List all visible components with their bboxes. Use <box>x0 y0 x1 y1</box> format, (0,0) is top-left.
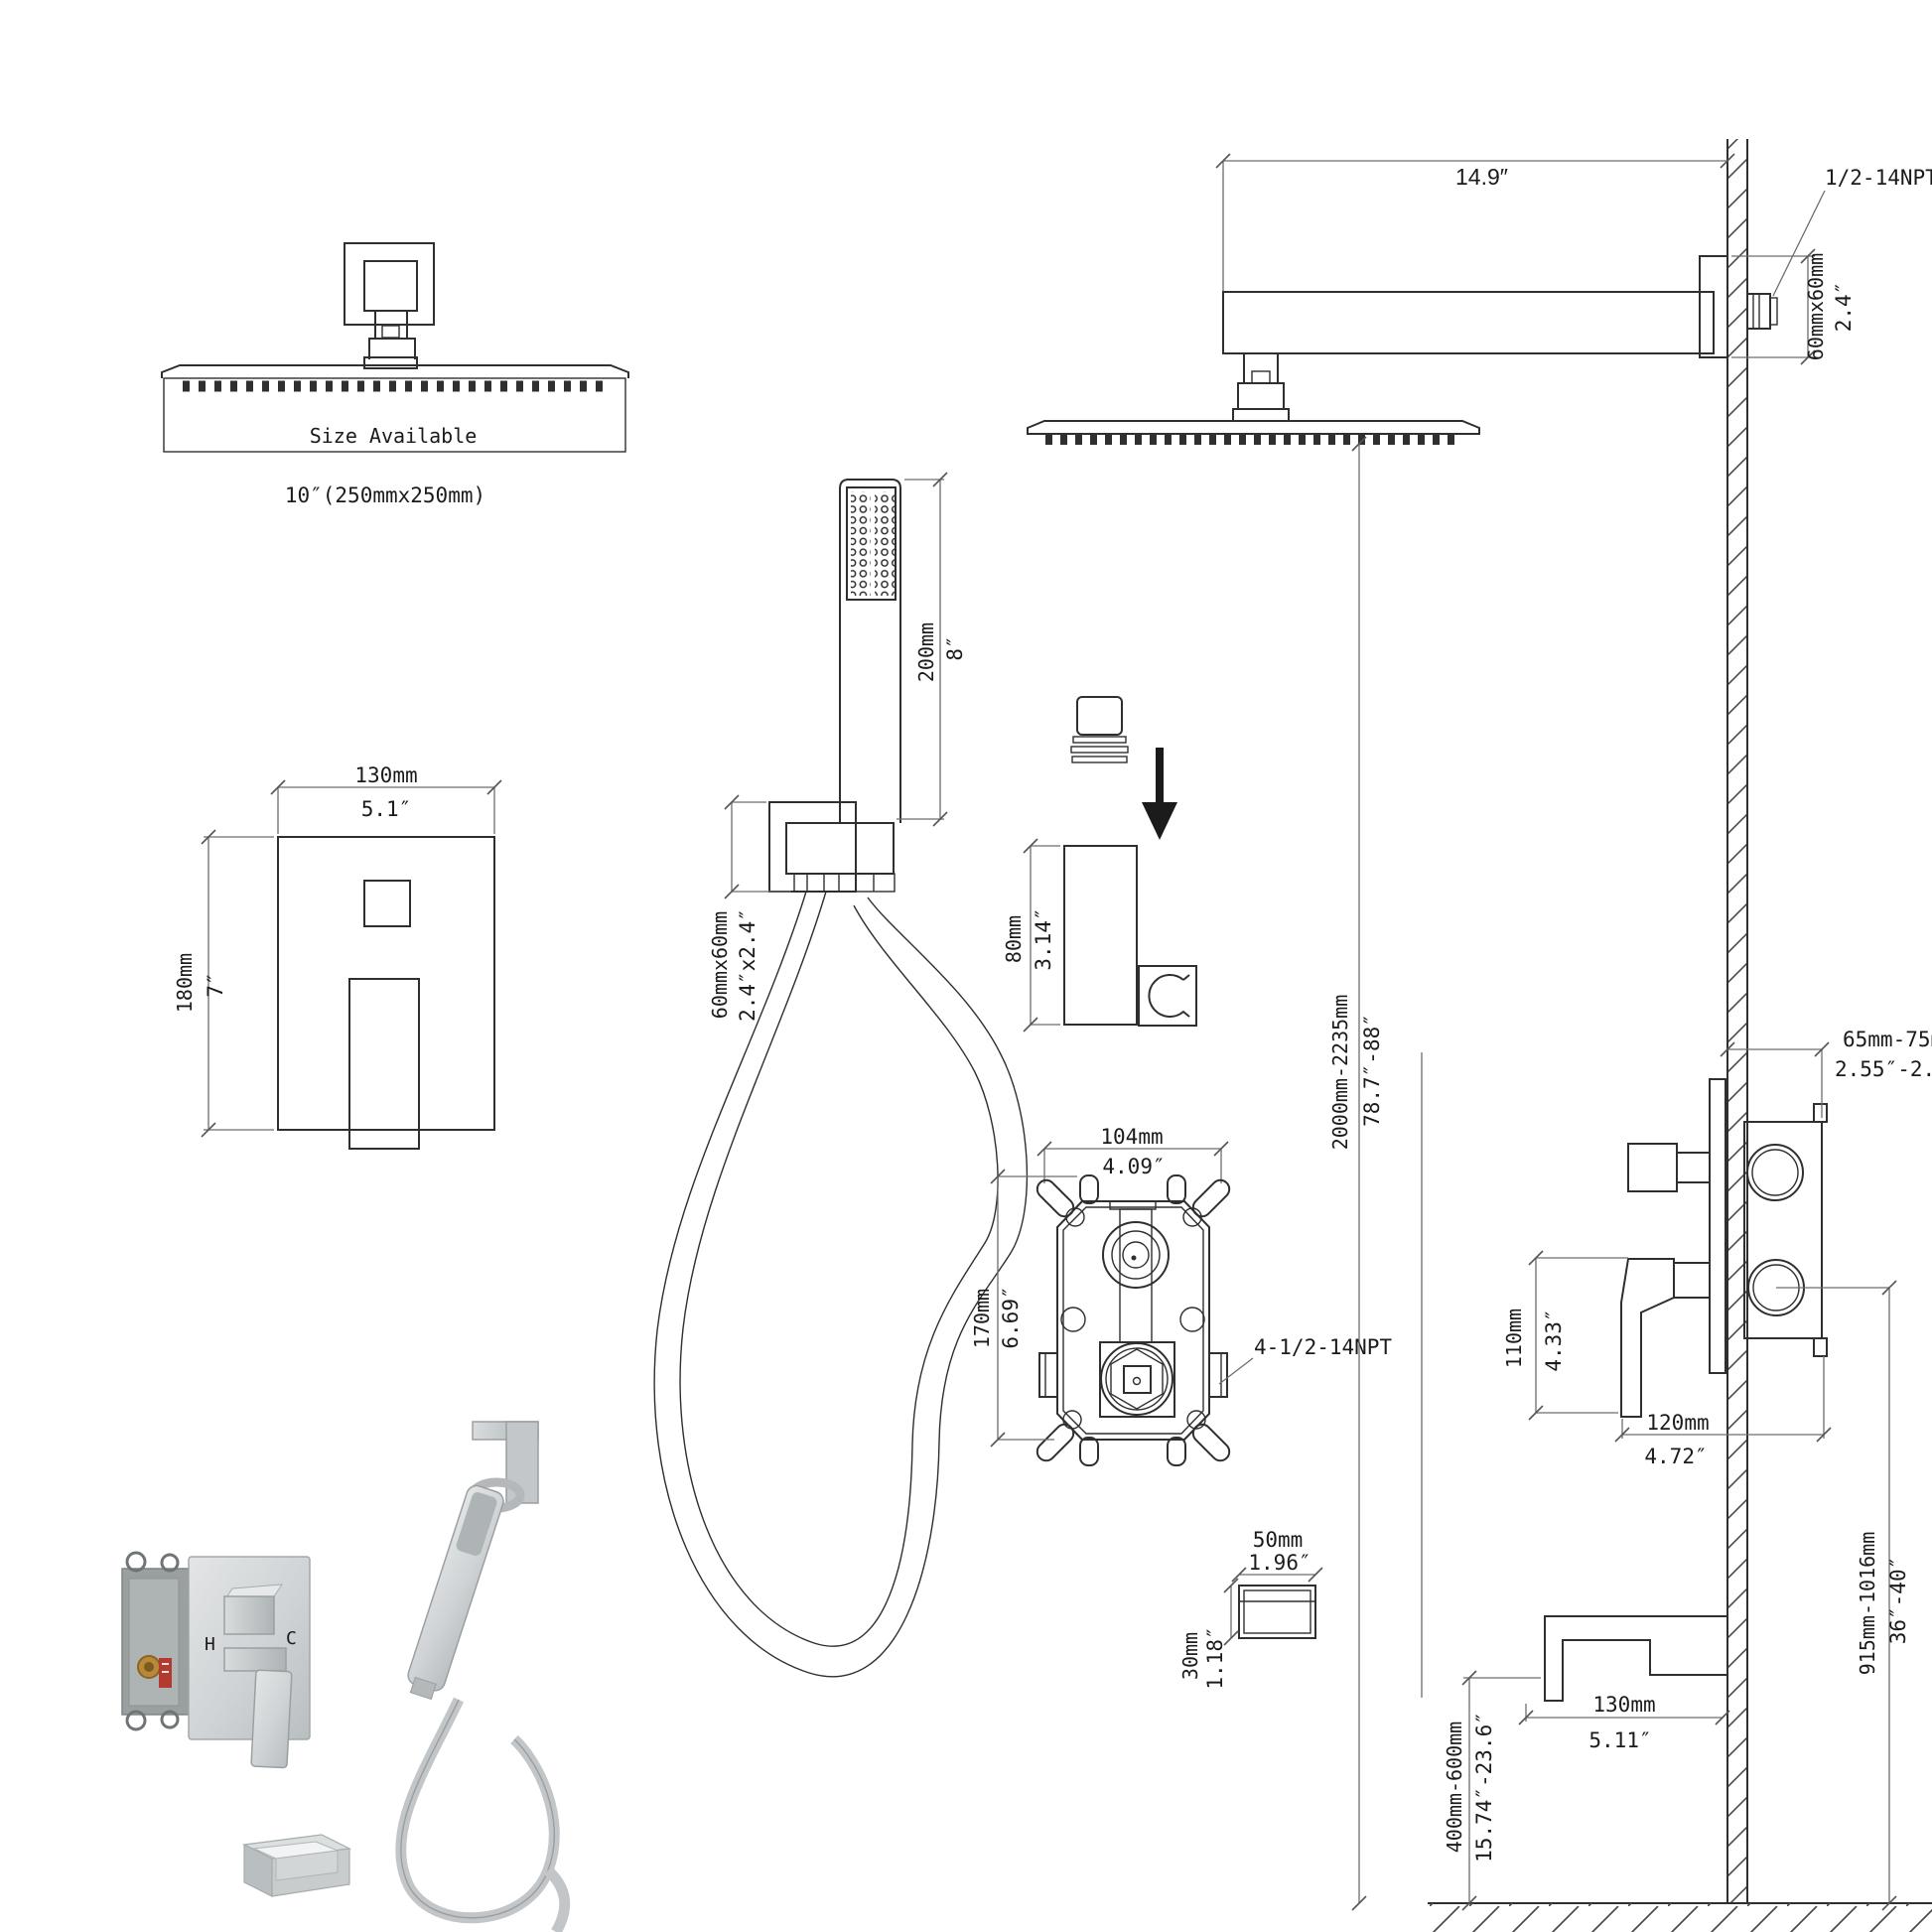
trim-plate-edge <box>1710 1079 1725 1373</box>
trim-height-in: 7″ <box>204 972 227 997</box>
valve-port-left <box>1039 1353 1057 1397</box>
elbow-outlet-block <box>786 823 894 874</box>
photo-cold-label: C <box>286 1628 297 1649</box>
cartridge-square-stem <box>1124 1366 1151 1393</box>
photo-hot-label: H <box>205 1634 215 1655</box>
escutcheon-body <box>1239 1586 1315 1638</box>
flange-in-label: 2.4″ <box>1832 282 1856 333</box>
wall-holder-body <box>1064 846 1137 1025</box>
holder-assembly-line-view: 80mm 3.14″ <box>1002 697 1196 1032</box>
valve-depth-mm: 65mm-75mm <box>1843 1028 1932 1051</box>
valve-floor-height-in: 36″-40″ <box>1886 1557 1910 1645</box>
photo-lever-hub <box>224 1648 286 1671</box>
handle-clearance-in: 4.72″ <box>1644 1445 1707 1468</box>
trim-width-mm: 130mm <box>354 763 417 787</box>
trim-height-mm: 180mm <box>173 953 197 1013</box>
valve-trim-photo: H C <box>122 1553 310 1768</box>
holder-height-mm: 80mm <box>1002 915 1026 963</box>
wand-adapter <box>1077 697 1122 735</box>
rough-in-valve-front-view: 104mm 4.09″ <box>970 1125 1392 1465</box>
wall-mounted-head-side-view: 14.9″ 1/2-14NPT 60mmx60mm 2.4″ <box>1028 154 1932 440</box>
insert-arrow-head <box>1142 802 1177 840</box>
valve-width-mm: 104mm <box>1100 1125 1163 1149</box>
valve-width-in: 4.09″ <box>1102 1155 1165 1178</box>
photo-diverter-knob <box>224 1596 274 1634</box>
elbow-nut-band <box>794 874 895 892</box>
cartridge-hex-nut <box>1111 1349 1163 1409</box>
flange-mm-label: 60mmx60mm <box>1804 253 1828 360</box>
diverter-knob-side <box>1628 1144 1677 1191</box>
lever-handle-side <box>1621 1259 1674 1417</box>
head-height-in: 78.7″-88″ <box>1360 1014 1384 1127</box>
valve-side-view: 65mm-75mm 2.55″-2.95″ 110mm 4.33″ 120mm … <box>1502 1028 1932 1910</box>
ports-leader-line <box>1219 1358 1253 1384</box>
elbow-size-dimension <box>725 795 791 898</box>
head-base-flange <box>364 357 417 368</box>
handheld-shower-line-view: 200mm 8″ 60mmx60mm 2.4″x2.4″ <box>654 473 1027 1677</box>
photo-lever-paddle <box>251 1670 292 1768</box>
head-coupling-upper <box>1238 383 1284 409</box>
valve-body-outline <box>1057 1201 1209 1440</box>
handle-clearance-mm: 120mm <box>1646 1411 1709 1435</box>
trim-handle <box>349 979 419 1149</box>
shower-system-spec-drawing: Size Available 10″(250mmx250mm) 14.9″ <box>0 0 1932 1932</box>
valve-port-right <box>1209 1353 1227 1397</box>
photo-hose-edge <box>401 1700 555 1918</box>
spout-height-mm: 400mm-600mm <box>1443 1722 1466 1853</box>
tub-spout-profile <box>1545 1616 1727 1701</box>
photo-brass-plug-center <box>144 1662 154 1672</box>
wand-length-in: 8″ <box>943 635 967 660</box>
lever-hub <box>1674 1263 1710 1298</box>
elbow-size-in: 2.4″x2.4″ <box>736 908 759 1022</box>
spout-length-mm: 130mm <box>1592 1693 1655 1717</box>
nipple-cap <box>1770 298 1777 325</box>
elbow-size-mm: 60mmx60mm <box>708 911 732 1019</box>
head-height-mm: 2000mm-2235mm <box>1328 995 1352 1151</box>
floor-section <box>1428 1903 1932 1932</box>
handheld-photo <box>401 1422 565 1932</box>
tub-spout-photo <box>244 1835 349 1896</box>
valve-height-mm: 170mm <box>970 1289 994 1348</box>
upper-port-circle <box>1747 1145 1803 1200</box>
overhead-showerhead-side-view: Size Available 10″(250mmx250mm) <box>162 243 628 507</box>
shower-arm <box>1223 292 1714 353</box>
holder-c-clip <box>1149 975 1189 1017</box>
diverter-knob-stem <box>1677 1153 1710 1182</box>
valve-body-inner <box>1063 1207 1203 1434</box>
valve-floor-height-mm: 915mm-1016mm <box>1856 1532 1879 1676</box>
escutcheon-height-in: 1.18″ <box>1203 1626 1227 1689</box>
wall-hatch <box>1727 139 1747 1903</box>
escutcheon-width-in: 1.96″ <box>1248 1551 1311 1575</box>
head-plate-top <box>162 365 628 378</box>
arm-length-label: 14.9″ <box>1455 164 1508 190</box>
wall-section <box>1727 139 1747 1903</box>
head-ball-base <box>369 339 415 359</box>
trim-plate-front-view: 130mm 5.1″ 180mm 7″ <box>173 763 501 1149</box>
head-size-label: 10″(250mmx250mm) <box>285 483 485 507</box>
head-stem-notch <box>382 326 399 338</box>
arm-ball-joint <box>1244 353 1278 383</box>
top-outlet-port <box>1103 1222 1169 1288</box>
handle-length-mm: 110mm <box>1502 1309 1526 1368</box>
rain-head-plate <box>1028 421 1479 434</box>
spout-length-in: 5.11″ <box>1588 1728 1651 1752</box>
diverter-button <box>364 881 410 926</box>
supply-elbow <box>769 802 856 892</box>
photo-hose <box>401 1700 555 1918</box>
handle-length-in: 4.33″ <box>1542 1309 1566 1371</box>
trim-width-in: 5.1″ <box>361 797 412 821</box>
size-available-label: Size Available <box>310 424 478 448</box>
escutcheon-height-mm: 30mm <box>1178 1632 1202 1680</box>
tub-spout-side-view: 130mm 5.11″ 400mm-600mm 15.74″-23.6″ <box>1443 1616 1729 1910</box>
valve-ports-label: 4-1/2-14NPT <box>1254 1335 1392 1359</box>
wand-nozzle-dots-left <box>851 491 871 596</box>
mount-bracket-inner <box>364 261 417 311</box>
valve-height-in: 6.69″ <box>999 1286 1023 1348</box>
wand-length-mm: 200mm <box>914 622 938 682</box>
photo-hose-tail <box>548 1870 565 1932</box>
head-height-dimension: 2000mm-2235mm 78.7″-88″ <box>1328 437 1422 1910</box>
valve-depth-in: 2.55″-2.95″ <box>1835 1057 1932 1081</box>
box-tab-bottom <box>1814 1338 1827 1356</box>
floor-hatch <box>1428 1903 1932 1932</box>
box-tab-top <box>1814 1104 1827 1122</box>
spout-height-in: 15.74″-23.6″ <box>1472 1712 1496 1863</box>
escutcheon-part-view: 50mm 1.96″ 30mm 1.18″ <box>1178 1528 1322 1690</box>
escutcheon-width-mm: 50mm <box>1253 1528 1304 1552</box>
mount-bracket-outer <box>345 243 434 325</box>
head-coupling-lower <box>1233 409 1289 421</box>
valve-screws <box>1061 1208 1205 1429</box>
npt-thread-label: 1/2-14NPT <box>1825 166 1932 190</box>
holder-height-in: 3.14″ <box>1032 907 1055 970</box>
wand-nozzle-dots-right <box>875 491 895 596</box>
